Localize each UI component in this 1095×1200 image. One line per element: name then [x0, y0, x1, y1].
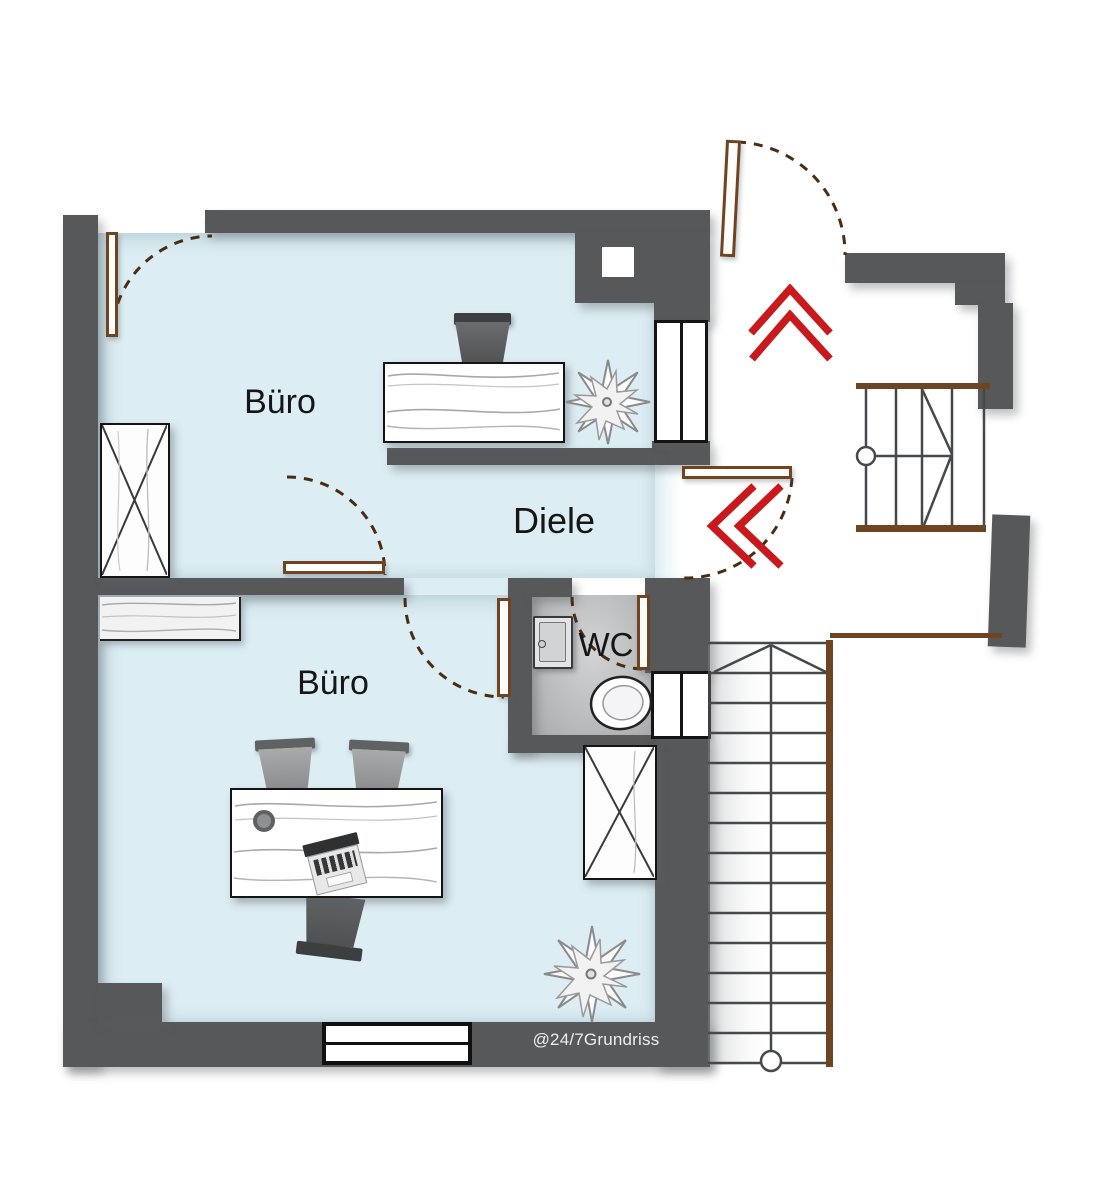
- desk-buero-top: [383, 362, 565, 443]
- wall-wc-right-block: [645, 578, 710, 673]
- cabinet-stair-wall: [651, 671, 711, 739]
- door-leaf-entrance: [720, 140, 741, 258]
- door-leaf-middle: [283, 561, 385, 574]
- sink-drain: [538, 640, 546, 648]
- stairs-lower: [708, 640, 833, 1071]
- wall-top: [205, 210, 710, 233]
- door-leaf-diele: [682, 466, 792, 479]
- wall-bottom-left-step: [98, 983, 162, 1022]
- wardrobe-buero-top: [100, 423, 170, 578]
- cabinet-door-divider: [680, 322, 683, 441]
- radiator-divider: [326, 1042, 468, 1045]
- shaft-opening: [602, 247, 634, 277]
- office-chair: [293, 892, 372, 980]
- wall-stairwell-right: [988, 514, 1031, 647]
- room-label-wc: WC: [566, 626, 646, 664]
- desk-cup: [253, 810, 275, 832]
- door-swing-arc-entrance: [737, 142, 845, 255]
- room-label-buero-bottom: Büro: [277, 664, 389, 703]
- wall-outer-left: [63, 215, 98, 1067]
- floor-door-opening: [404, 578, 508, 595]
- wall-entrance-step: [955, 283, 1005, 305]
- sideboard: [100, 597, 241, 641]
- door-leaf-buero-top: [106, 232, 118, 337]
- wall-wc-left: [508, 578, 532, 750]
- room-label-diele: Diele: [498, 500, 610, 542]
- entrance-arrow-up-icon: [751, 289, 830, 359]
- sideboard-woodgrain: [100, 597, 238, 638]
- door-swing-arc-diele: [684, 478, 792, 578]
- radiator: [322, 1022, 472, 1065]
- wardrobe-cross: [585, 747, 654, 877]
- stair-landing-rail: [830, 633, 1002, 638]
- office-chair: [347, 739, 410, 792]
- wall-middle: [98, 578, 404, 595]
- floor-diele-fade: [655, 465, 681, 578]
- wall-wc-top: [528, 578, 572, 597]
- door-leaf-buero-bottom: [497, 598, 511, 697]
- room-label-buero-top: Büro: [224, 383, 336, 422]
- wall-top-right-block: [575, 233, 710, 303]
- wall-buero-diele: [387, 448, 654, 465]
- office-chair: [255, 737, 318, 790]
- wardrobe-buero-bottom: [583, 745, 657, 880]
- cabinet-buero-top: [654, 320, 708, 443]
- floorplan-canvas: Büro Diele WC Büro @24/7Grundriss: [0, 0, 1095, 1200]
- wall-entrance-right: [978, 303, 1013, 409]
- stairs-upper: [856, 383, 990, 532]
- entrance-arrow-left-icon: [712, 486, 781, 566]
- office-chair: [452, 311, 513, 362]
- watermark: @24/7Grundriss: [521, 1030, 671, 1050]
- cabinet-door-divider: [680, 673, 683, 737]
- wall-right-column-lower: [655, 737, 710, 1067]
- wardrobe-cross: [102, 425, 167, 575]
- desk-woodgrain: [385, 364, 562, 440]
- wall-entrance-top: [845, 253, 1005, 283]
- wall-below-cabinet: [652, 441, 710, 465]
